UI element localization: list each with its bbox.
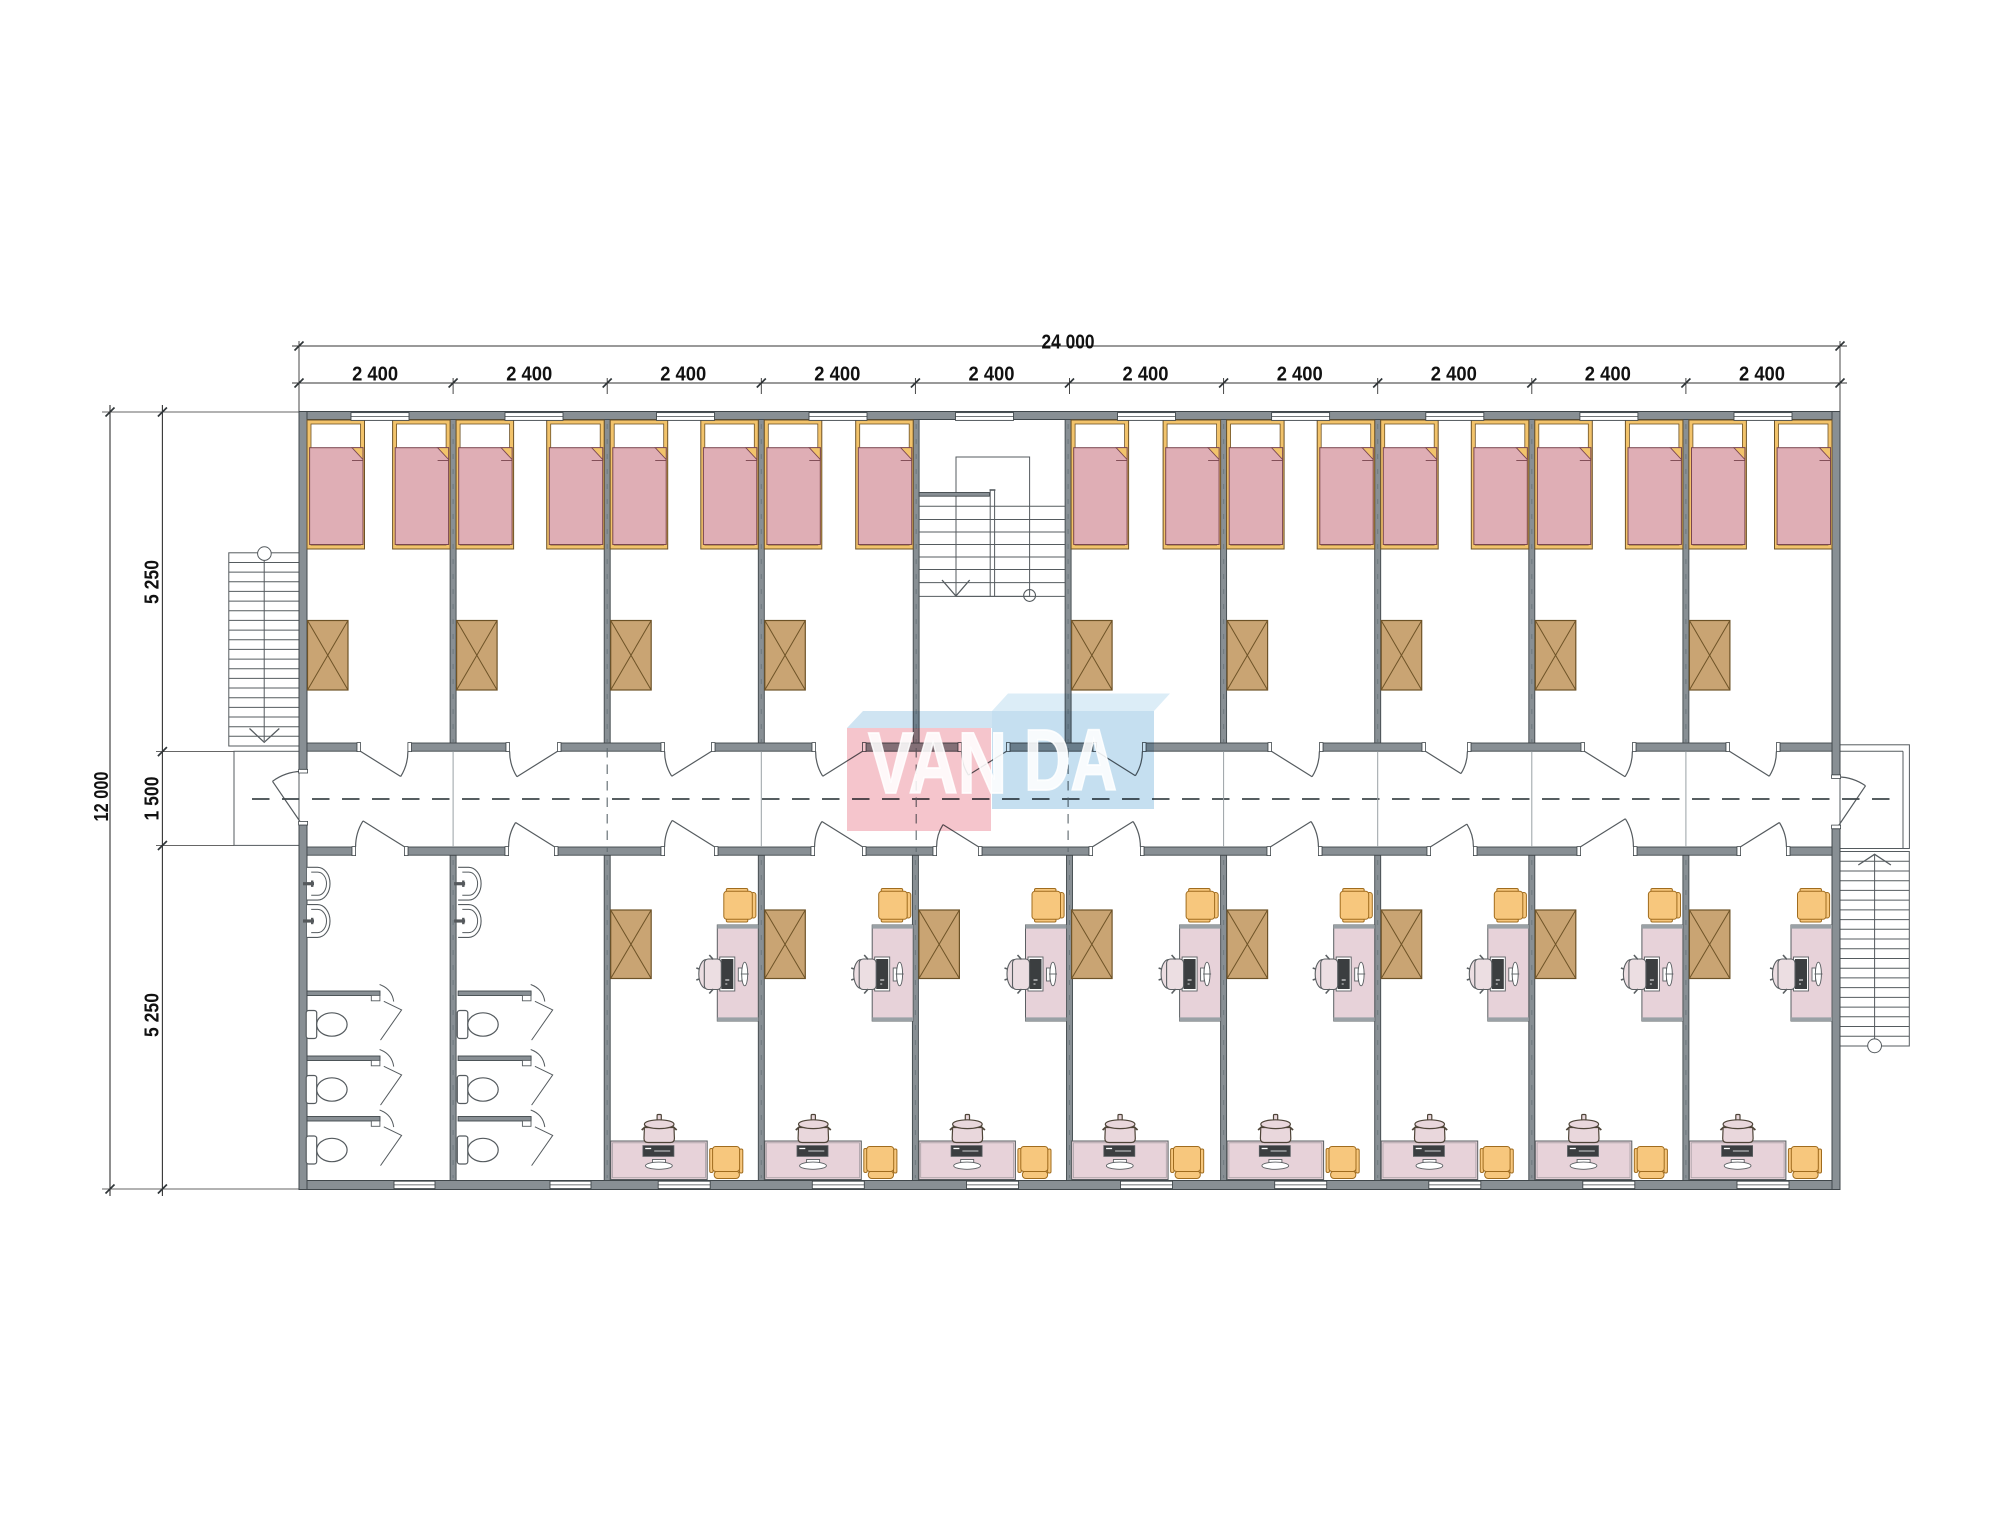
svg-text:2 400: 2 400 <box>506 363 552 386</box>
svg-text:2 400: 2 400 <box>660 363 706 386</box>
svg-text:2 400: 2 400 <box>1431 363 1477 386</box>
svg-text:2 400: 2 400 <box>1123 363 1169 386</box>
svg-text:2 400: 2 400 <box>352 363 398 386</box>
svg-text:5 250: 5 250 <box>141 993 164 1037</box>
svg-text:2 400: 2 400 <box>1585 363 1631 386</box>
svg-text:DA: DA <box>1024 712 1117 809</box>
svg-text:2 400: 2 400 <box>814 363 860 386</box>
svg-text:2 400: 2 400 <box>1277 363 1323 386</box>
svg-text:24 000: 24 000 <box>1042 331 1095 354</box>
svg-text:2 400: 2 400 <box>1739 363 1785 386</box>
svg-text:5 250: 5 250 <box>141 560 164 604</box>
svg-text:12 000: 12 000 <box>90 772 113 822</box>
svg-text:2 400: 2 400 <box>969 363 1015 386</box>
svg-text:VAN: VAN <box>868 715 1007 812</box>
svg-text:1 500: 1 500 <box>141 777 164 821</box>
